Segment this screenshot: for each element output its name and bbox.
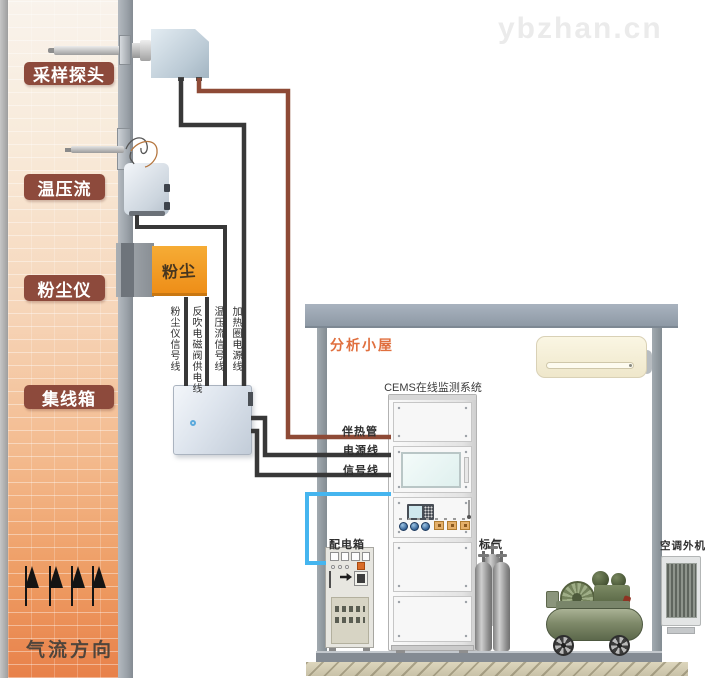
shed-floor <box>316 651 662 662</box>
watermark-text: ybzhan.cn <box>498 12 663 46</box>
label-temp-pressure-flow: 温压流 <box>24 174 105 200</box>
tpf-connector <box>164 184 170 192</box>
probe-cable-gland <box>196 77 202 81</box>
cabinet-display-screen <box>401 452 461 488</box>
arrow-tail <box>92 566 94 606</box>
pbox-meter-screen <box>357 574 365 583</box>
label-sampling-probe: 采样探头 <box>24 62 114 85</box>
vent-slots <box>335 617 365 623</box>
cabinet-connector <box>460 521 470 530</box>
cabinet-connector <box>447 521 457 530</box>
pbox-slot <box>329 571 331 588</box>
compressor-wheel <box>609 635 630 656</box>
pbox-foot <box>363 648 370 651</box>
controller-lcd-screen <box>409 506 422 518</box>
junction-box-connector <box>248 392 253 406</box>
cabinet-foot <box>459 650 468 653</box>
indicator-lights <box>331 564 355 569</box>
dust-meter-body: 粉尘 <box>152 246 207 296</box>
cabinet-foot <box>396 650 405 653</box>
arrow-head-icon <box>71 566 85 588</box>
cabinet-panel <box>393 402 472 442</box>
tpf-box-base <box>129 211 165 216</box>
indoor-ac-indicator <box>629 364 632 367</box>
power-distribution-label: 配电箱 <box>329 536 365 552</box>
stack-left-edge <box>0 0 8 678</box>
dust-signal-cable-label: 粉尘仪信号线 <box>166 306 181 372</box>
cylinder-valve <box>478 554 489 557</box>
arrow-head-icon <box>92 566 106 588</box>
tpf-transmitter-box <box>124 163 169 215</box>
blowback-power-cable-label: 反吹电磁阀供电线 <box>188 306 203 394</box>
standard-gas-label: 标气 <box>479 536 503 552</box>
cabinet-panel <box>393 542 472 592</box>
pbox-foot <box>329 648 336 651</box>
signal-line-label: 信号线 <box>343 462 379 478</box>
cabinet-label-strip <box>399 518 471 520</box>
probe-head-box <box>151 29 209 78</box>
cabinet-screen-side-strip <box>464 457 469 483</box>
cabinet-knob <box>421 522 430 531</box>
arrow-tail <box>49 566 51 606</box>
indoor-ac-unit <box>536 336 647 378</box>
junction-box-device <box>173 385 252 455</box>
cems-diagram: ybzhan.cn 气流方向 采样探头 温压流 粉尘仪 集线箱 <box>0 0 708 678</box>
cylinder-valve <box>496 554 507 557</box>
heat-trace-label: 伴热管 <box>342 423 378 439</box>
shed-roof <box>305 304 678 328</box>
heater-power-cable-label: 加热圈电源线 <box>228 306 243 372</box>
breaker-row <box>330 552 370 561</box>
arrow-head-icon <box>25 566 39 588</box>
power-line-label: 电源线 <box>343 442 379 458</box>
junction-box-logo <box>190 420 196 426</box>
stack-right-edge <box>118 0 133 678</box>
alarm-lamp <box>357 562 365 570</box>
tpf-signal-cable-label: 温压流信号线 <box>210 306 225 372</box>
probe-cable-gland <box>178 77 184 81</box>
tpf-connector <box>164 202 170 210</box>
arrow-head-icon <box>49 566 63 588</box>
outdoor-ac-label: 空调外机 <box>660 538 706 553</box>
compressor-wheel <box>553 635 574 656</box>
label-junction-box: 集线箱 <box>24 385 114 409</box>
ground-hatch <box>306 662 688 676</box>
airflow-direction-label: 气流方向 <box>26 635 114 662</box>
cems-cabinet-top <box>389 395 476 400</box>
probe-tube <box>54 46 121 55</box>
arrow-tail <box>71 566 73 606</box>
arrow-tail <box>25 566 27 606</box>
gas-cylinder <box>475 562 492 651</box>
cabinet-knob <box>399 522 408 531</box>
cabinet-panel <box>393 596 472 642</box>
shed-title: 分析小屋 <box>330 335 394 355</box>
heat-trace-line <box>199 78 391 437</box>
probe-fitting <box>140 40 151 61</box>
dust-meter-mount-core <box>121 243 134 297</box>
cems-system-label: CEMS在线监测系统 <box>373 379 493 395</box>
probe-fitting <box>132 43 140 58</box>
tpf-probe-tube <box>71 146 124 153</box>
gas-cylinder <box>493 562 510 651</box>
vent-slots <box>335 606 365 612</box>
label-dust-meter: 粉尘仪 <box>24 275 105 301</box>
cabinet-connector <box>434 521 444 530</box>
outdoor-ac-grille <box>666 563 697 618</box>
outdoor-ac-bracket <box>667 627 695 634</box>
cabinet-knob <box>410 522 419 531</box>
dust-meter-text: 粉尘 <box>162 256 198 282</box>
controller-keypad <box>424 506 433 518</box>
indoor-ac-vent <box>546 362 634 369</box>
probe-flange <box>119 35 131 65</box>
